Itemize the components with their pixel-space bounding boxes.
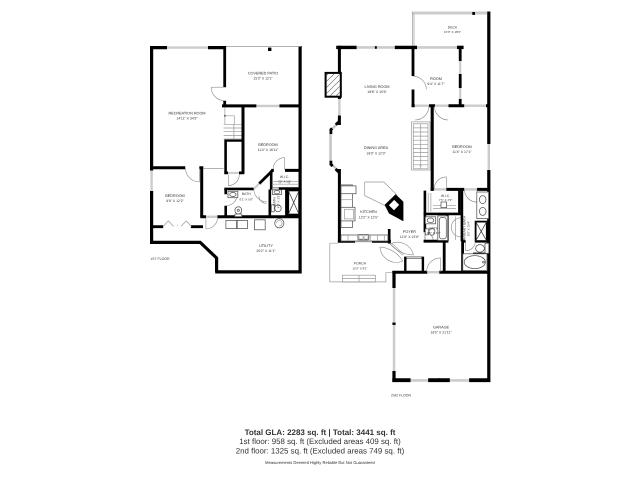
svg-text:UTILITY: UTILITY <box>259 244 273 248</box>
svg-text:2nd floor: 1325 sq. ft (Exclud: 2nd floor: 1325 sq. ft (Excluded areas 7… <box>236 447 405 456</box>
svg-text:11'9" X 13'9": 11'9" X 13'9" <box>400 235 420 239</box>
svg-text:7'5" X 4'9": 7'5" X 4'9" <box>439 198 453 202</box>
svg-text:DECK: DECK <box>448 25 458 29</box>
svg-text:LIVING ROOM: LIVING ROOM <box>364 85 389 89</box>
svg-text:BEDROOM: BEDROOM <box>258 143 277 147</box>
svg-text:2ND FLOOR: 2ND FLOOR <box>391 393 412 397</box>
svg-text:GARAGE: GARAGE <box>433 325 450 329</box>
svg-text:7'5" X 5'5": 7'5" X 5'5" <box>278 180 292 184</box>
svg-text:20'2" X 11'1": 20'2" X 11'1" <box>256 249 276 253</box>
svg-text:BEDROOM: BEDROOM <box>165 194 184 198</box>
svg-text:FOYER: FOYER <box>403 230 416 234</box>
svg-text:18'6" X 15'9": 18'6" X 15'9" <box>367 90 387 94</box>
svg-text:12'2" X 12'5": 12'2" X 12'5" <box>359 215 379 219</box>
svg-text:9'4" X 11'7": 9'4" X 11'7" <box>427 82 445 86</box>
svg-text:11'4" X 17'1": 11'4" X 17'1" <box>452 150 472 154</box>
svg-text:KITCHEN: KITCHEN <box>360 210 377 214</box>
svg-text:1ST FLOOR: 1ST FLOOR <box>150 257 170 261</box>
svg-text:Measurements Deemed Highly Rel: Measurements Deemed Highly Reliable But … <box>265 460 375 465</box>
svg-text:14'11" X 34'3": 14'11" X 34'3" <box>176 117 198 121</box>
svg-text:15'3" X 18'9": 15'3" X 18'9" <box>444 30 461 34</box>
svg-text:BATH: BATH <box>242 192 251 196</box>
svg-text:15'9" X 8'1": 15'9" X 8'1" <box>352 266 367 270</box>
svg-text:W.I.C.: W.I.C. <box>280 175 289 179</box>
svg-text:BEDROOM: BEDROOM <box>452 145 471 149</box>
svg-text:6'1" X 5'0": 6'1" X 5'0" <box>239 197 253 201</box>
svg-text:8'5" X 4'9": 8'5" X 4'9" <box>427 231 441 235</box>
svg-text:19'0" X 12'3": 19'0" X 12'3" <box>366 151 386 155</box>
svg-text:1st floor: 958 sq. ft (Exclude: 1st floor: 958 sq. ft (Excluded areas 40… <box>239 437 401 446</box>
svg-text:11'4" X 16'11": 11'4" X 16'11" <box>258 148 280 152</box>
svg-text:Total GLA: 2283 sq. ft | Total: Total GLA: 2283 sq. ft | Total: 3441 sq.… <box>245 428 396 437</box>
svg-text:19'5" X 21'11": 19'5" X 21'11" <box>430 331 452 335</box>
svg-text:COVERED PATIO: COVERED PATIO <box>248 71 278 75</box>
svg-text:15'3" X 12'1": 15'3" X 12'1" <box>253 77 273 81</box>
svg-text:PORCH: PORCH <box>354 261 367 265</box>
svg-text:RECREATION ROOM: RECREATION ROOM <box>168 111 205 115</box>
svg-text:DINING AREA: DINING AREA <box>364 146 389 150</box>
svg-text:4'5" X 3'5": 4'5" X 3'5" <box>277 195 281 209</box>
svg-text:ROOM: ROOM <box>430 77 442 81</box>
svg-text:9'9" X 12'2": 9'9" X 12'2" <box>166 199 184 203</box>
svg-text:5'5" X 16'4": 5'5" X 16'4" <box>466 221 470 236</box>
